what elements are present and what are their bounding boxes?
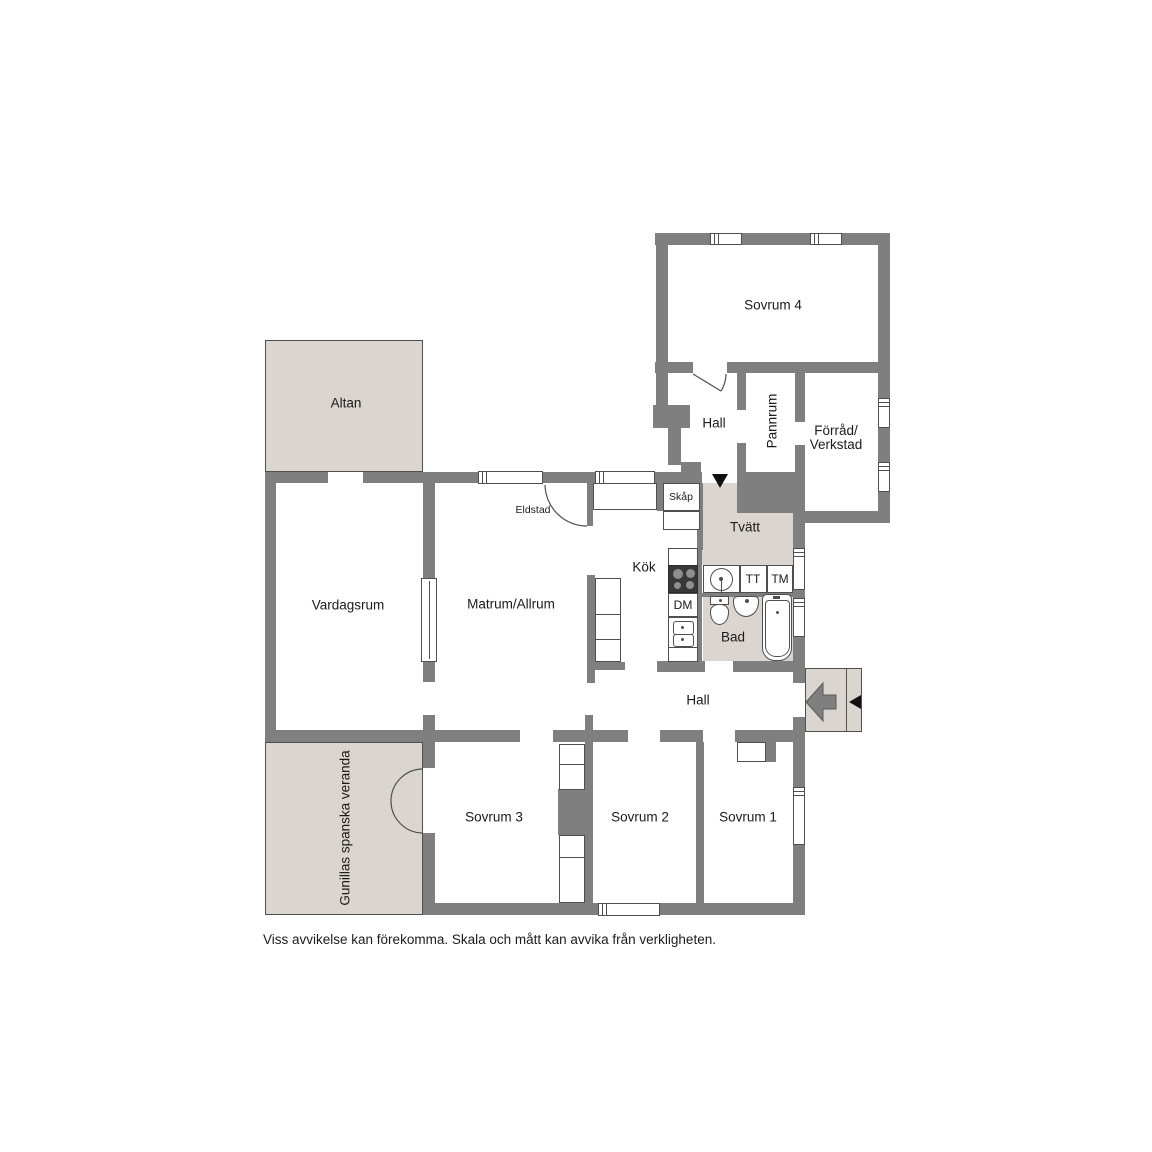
wall — [737, 443, 746, 475]
window — [598, 903, 660, 916]
bathtub-faucet — [773, 596, 780, 599]
room-label-hall-main: Hall — [686, 693, 709, 708]
room-label-vardagsrum: Vardagsrum — [312, 598, 385, 613]
wardrobe — [559, 835, 585, 858]
wall — [653, 405, 690, 428]
wardrobe — [559, 764, 585, 790]
room-label-sovrum2: Sovrum 2 — [611, 810, 669, 825]
room-label-forrad-line1: Förråd/ — [814, 423, 858, 438]
wall — [423, 483, 435, 578]
room-label-pannrum: Pannrum — [765, 394, 780, 449]
faucet-dot — [745, 599, 749, 603]
label-tm: TM — [771, 572, 788, 586]
wall — [435, 730, 520, 742]
wall — [696, 742, 704, 905]
wall — [595, 662, 625, 670]
stove-icon — [668, 565, 698, 593]
entrance-porch — [805, 668, 862, 732]
label-eldstad: Eldstad — [515, 504, 550, 516]
wall — [657, 661, 705, 672]
sliding-door-line — [429, 581, 430, 659]
cabinet — [663, 511, 700, 530]
drain-dot — [681, 638, 684, 641]
wall — [423, 662, 435, 682]
shelf — [595, 614, 621, 640]
counter — [593, 483, 657, 510]
window — [878, 462, 890, 492]
wall — [423, 715, 435, 768]
wall — [587, 575, 595, 683]
wall — [795, 373, 805, 422]
wall — [655, 362, 693, 373]
burner-icon — [686, 581, 694, 589]
drain-dot — [776, 611, 779, 614]
faucet-line — [721, 580, 722, 592]
room-label-sovrum1: Sovrum 1 — [719, 810, 777, 825]
drain-dot — [681, 626, 684, 629]
label-dm: DM — [674, 598, 693, 612]
wall — [668, 428, 681, 465]
wall — [766, 742, 776, 762]
room-label-sovrum4: Sovrum 4 — [744, 298, 802, 313]
room-label-forrad: Förråd/ Verkstad — [810, 424, 863, 452]
window — [478, 471, 543, 484]
porch-divider — [846, 669, 847, 731]
window — [878, 398, 890, 428]
laundry-sink — [703, 565, 740, 593]
wall — [737, 373, 746, 410]
sliding-door — [421, 578, 437, 662]
wall — [363, 472, 478, 483]
burner-icon — [674, 582, 681, 589]
bathtub — [762, 594, 792, 661]
wall — [733, 661, 793, 672]
flush-dot — [719, 599, 722, 602]
room-label-matrum: Matrum/Allrum — [467, 597, 555, 612]
wall — [265, 472, 276, 742]
wall — [655, 472, 702, 483]
room-label-altan: Altan — [331, 396, 362, 411]
room-label-kok: Kök — [632, 560, 655, 575]
burner-icon — [686, 569, 695, 578]
wall — [735, 730, 800, 742]
label-tt: TT — [746, 572, 761, 586]
wall — [265, 730, 437, 742]
kitchen-sink — [668, 617, 698, 648]
room-label-hall-upper: Hall — [702, 416, 725, 431]
room-label-bad: Bad — [721, 630, 745, 645]
label-skap: Skåp — [669, 491, 693, 503]
wall — [737, 472, 805, 513]
wardrobe — [559, 744, 585, 765]
disclaimer-text: Viss avvikelse kan förekomma. Skala och … — [263, 932, 716, 947]
shelf — [595, 578, 621, 615]
wall — [656, 233, 668, 405]
shelf — [595, 639, 621, 662]
wall — [585, 715, 593, 732]
wall — [698, 550, 702, 661]
room-label-veranda: Gunillas spanska veranda — [338, 750, 353, 905]
wardrobe — [559, 857, 585, 903]
wall — [727, 362, 878, 373]
door-swings-overlay — [0, 0, 1152, 1152]
burner-icon — [673, 569, 683, 579]
wall — [558, 789, 593, 835]
window — [793, 787, 805, 845]
window — [710, 233, 742, 245]
room-label-tvatt: Tvätt — [730, 520, 760, 535]
closet — [737, 742, 766, 762]
window — [810, 233, 842, 245]
wall — [655, 233, 890, 245]
wall — [660, 730, 703, 742]
window — [793, 598, 805, 637]
window — [793, 548, 805, 590]
floor-plan: Sovrum 4 Hall Pannrum Förråd/ Verkstad A… — [0, 0, 1152, 1152]
room-label-forrad-line2: Verkstad — [810, 437, 863, 452]
wall — [795, 511, 890, 523]
room-label-sovrum3: Sovrum 3 — [465, 810, 523, 825]
bathtub-inner — [765, 600, 790, 657]
